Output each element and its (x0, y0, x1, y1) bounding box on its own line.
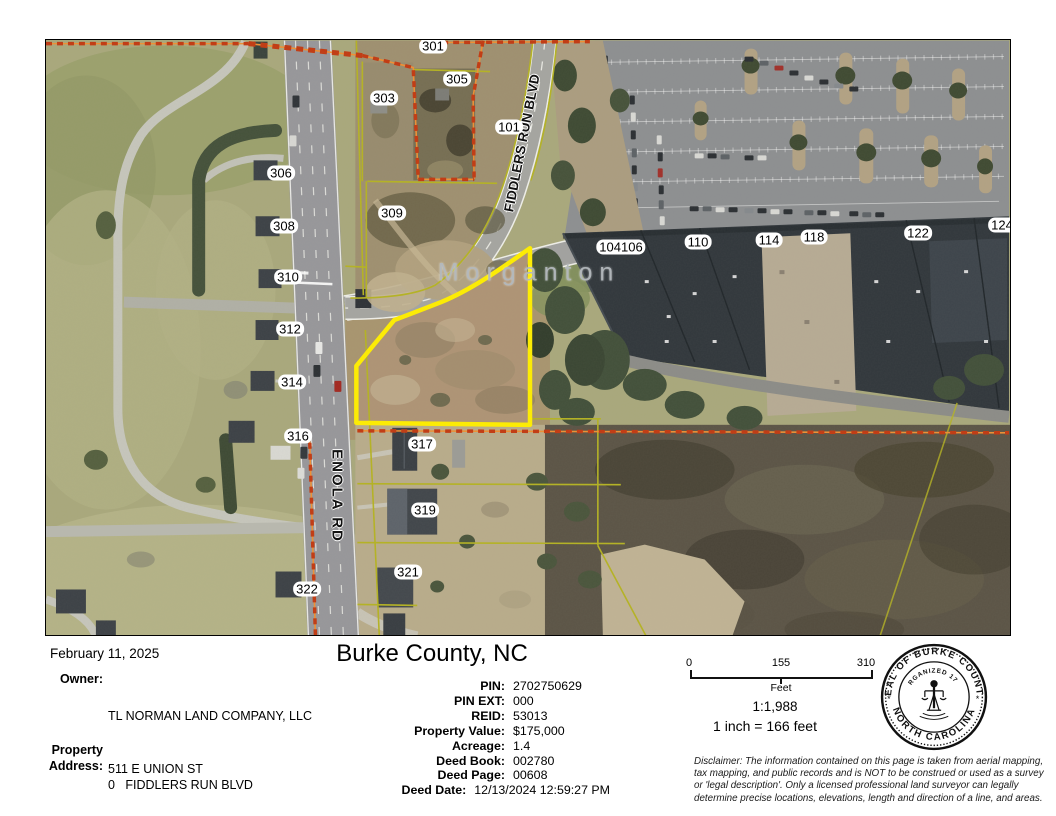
parcel-label: 319 (411, 503, 439, 518)
field-label: REID: (330, 709, 505, 724)
parcel-label: 321 (394, 565, 422, 580)
report-date: February 11, 2025 (50, 646, 159, 661)
field-value: 2702750629 (513, 679, 582, 694)
page-title: Burke County, NC (336, 640, 528, 668)
scale-bar-tick (871, 670, 873, 678)
field-value: 1.4 (513, 739, 530, 754)
parcel-label: 317 (408, 437, 436, 452)
scale-tick: 310 (857, 657, 875, 669)
parcel-label: 306 (267, 166, 295, 181)
parcel-label: 303 (370, 91, 398, 106)
parcel-label: 309 (378, 206, 406, 221)
field-label: PIN EXT: (330, 694, 505, 709)
parcel-label: 305 (443, 72, 471, 87)
scale-equivalence: 1 inch = 166 feet (713, 718, 817, 734)
parcel-label: 101 (495, 120, 523, 135)
parcel-label: 312 (276, 322, 304, 337)
street-label-enola-rd: ENOLA RD (329, 449, 346, 543)
field-value: $175,000 (513, 724, 565, 739)
disclaimer-text: Disclaimer: The information contained on… (694, 756, 1046, 805)
owner-line: TL NORMAN LAND COMPANY, LLC (108, 708, 312, 726)
field-value: 002780 (513, 754, 554, 769)
gis-report-page: Morganton FIDDLERS RUN BLVD ENOLA RD 301… (0, 0, 1056, 816)
field-label: PIN: (330, 679, 505, 694)
parcel-label: 122 (904, 226, 932, 241)
property-address-label-line: Property (40, 742, 103, 758)
field-label: Property Value: (330, 724, 505, 739)
field-value: 000 (513, 694, 534, 709)
parcel-fields: PIN:2702750629 PIN EXT:000 REID:53013 Pr… (330, 679, 610, 798)
property-address-label: Property Address: (40, 742, 103, 774)
parcel-label: 314 (278, 375, 306, 390)
parcel-label: 114 (756, 233, 783, 248)
field-value: 12/13/2024 12:59:27 PM (474, 783, 610, 798)
field-label: Deed Date: (330, 783, 466, 798)
parcel-label: 110 (685, 235, 712, 250)
scale-tick: 155 (772, 657, 790, 669)
parcel-label: 322 (293, 582, 321, 597)
map-view[interactable]: Morganton FIDDLERS RUN BLVD ENOLA RD 301… (45, 39, 1011, 636)
parcel-label: 310 (274, 270, 302, 285)
parcel-label: 124 (988, 218, 1011, 233)
parcel-label: 104106 (596, 240, 645, 255)
seal-star-left: * (887, 694, 891, 704)
parcel-label: 301 (419, 39, 447, 54)
field-value: 53013 (513, 709, 547, 724)
property-address-line: 0 FIDDLERS RUN BLVD (108, 777, 253, 794)
parcel-label: 308 (270, 219, 298, 234)
property-address-label-line: Address: (40, 758, 103, 774)
scale-tick: 0 (686, 657, 692, 669)
field-value: 00608 (513, 768, 547, 783)
field-label: Deed Book: (330, 754, 505, 769)
seal-star-right: * (976, 694, 980, 704)
field-label: Acreage: (330, 739, 505, 754)
scale-ratio: 1:1,988 (752, 699, 797, 714)
property-address-value: 0 FIDDLERS RUN BLVD MORGANTON 28655 PROP… (108, 744, 253, 816)
parcel-label: 316 (284, 429, 312, 444)
parcel-label: 118 (801, 230, 828, 245)
city-label: Morganton (438, 259, 621, 288)
scale-bar-tick (690, 670, 692, 678)
owner-label: Owner: (40, 672, 103, 686)
scale-unit: Feet (770, 682, 791, 694)
county-seal: SEAL OF BURKE COUNTY NORTH CAROLINA ORGA… (878, 641, 990, 753)
field-label: Deed Page: (330, 768, 505, 783)
